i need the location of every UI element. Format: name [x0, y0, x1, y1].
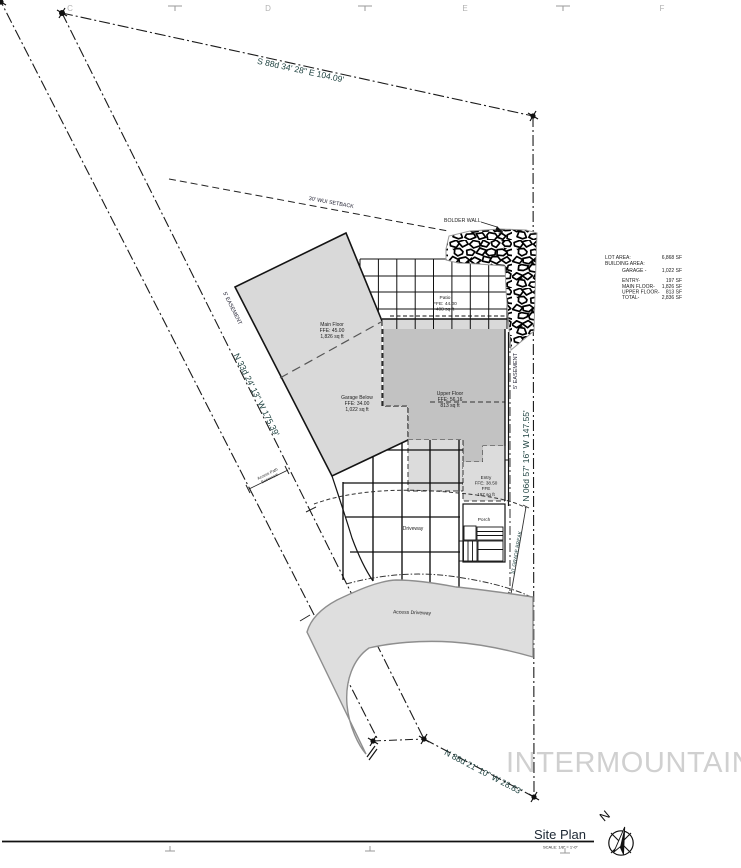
svg-text:Site Plan: Site Plan: [534, 827, 586, 842]
svg-text:SCALE: 1/8" = 1'-0": SCALE: 1/8" = 1'-0": [543, 845, 578, 850]
svg-text:BUILDING AREA:: BUILDING AREA:: [605, 261, 645, 267]
svg-text:Main FloorFFE: 45.001,826 sq f: Main FloorFFE: 45.001,826 sq ft: [320, 322, 345, 340]
svg-text:6,868 SF: 6,868 SF: [662, 255, 682, 261]
svg-text:Driveway: Driveway: [403, 526, 424, 532]
svg-text:C: C: [67, 4, 73, 13]
svg-text:E: E: [462, 4, 467, 13]
svg-text:F: F: [660, 4, 665, 13]
svg-text:2,836 SF: 2,836 SF: [662, 295, 682, 301]
svg-text:D: D: [265, 4, 271, 13]
svg-text:Garage BelowFFE: 34.001,022 sq: Garage BelowFFE: 34.001,022 sq ft: [341, 395, 373, 413]
svg-text:Upper FloorFFE: 56.16813 sq ft: Upper FloorFFE: 56.16813 sq ft: [437, 391, 464, 409]
svg-text:BOLDER WALL: BOLDER WALL: [444, 218, 481, 224]
svg-text:GARAGE -: GARAGE -: [622, 268, 647, 274]
svg-text:TOTAL-: TOTAL-: [622, 295, 640, 301]
svg-text:INTERMOUNTAIN: INTERMOUNTAIN: [506, 747, 741, 779]
svg-text:Porch: Porch: [478, 517, 491, 523]
svg-text:5' EASEMENT: 5' EASEMENT: [513, 352, 519, 389]
svg-text:1,022 SF: 1,022 SF: [662, 268, 682, 274]
svg-text:N 06d 57' 16" W 147.55': N 06d 57' 16" W 147.55': [521, 410, 531, 502]
